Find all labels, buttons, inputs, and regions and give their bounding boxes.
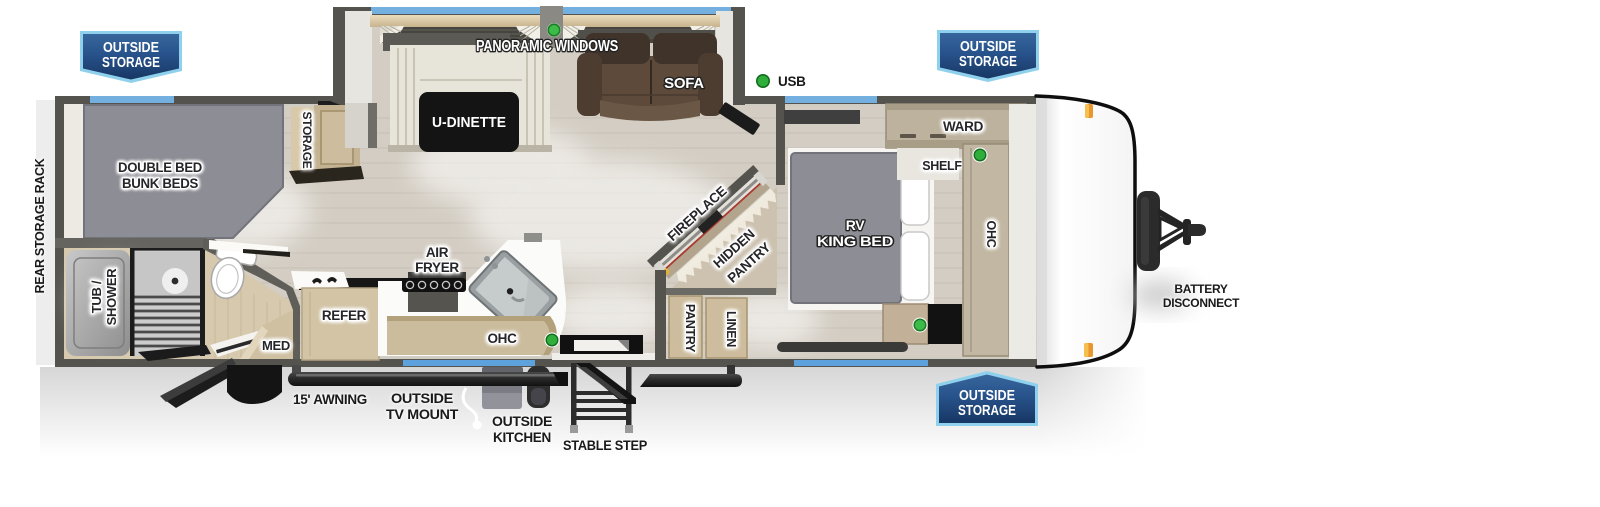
svg-text:STORAGE: STORAGE <box>102 55 160 71</box>
svg-text:MED: MED <box>262 338 290 353</box>
svg-text:OHC: OHC <box>984 221 998 248</box>
svg-text:OUTSIDE: OUTSIDE <box>391 391 453 406</box>
svg-text:OUTSIDE: OUTSIDE <box>103 40 159 56</box>
svg-text:STABLE STEP: STABLE STEP <box>563 438 647 453</box>
svg-text:OUTSIDE: OUTSIDE <box>960 39 1016 55</box>
svg-text:DISCONNECT: DISCONNECT <box>1163 296 1240 310</box>
svg-text:STORAGE: STORAGE <box>300 111 314 168</box>
svg-text:LINEN: LINEN <box>724 311 738 347</box>
svg-text:BUNK BEDS: BUNK BEDS <box>122 175 198 191</box>
svg-text:REFER: REFER <box>322 308 367 323</box>
svg-text:U-DINETTE: U-DINETTE <box>432 114 506 131</box>
svg-text:TV MOUNT: TV MOUNT <box>386 407 459 422</box>
svg-text:RV: RV <box>846 217 866 233</box>
svg-text:PANTRY: PANTRY <box>683 304 697 353</box>
svg-text:FRYER: FRYER <box>415 260 459 275</box>
svg-text:OUTSIDE: OUTSIDE <box>959 388 1015 404</box>
svg-text:AIR: AIR <box>426 245 449 260</box>
svg-text:TUB /: TUB / <box>89 280 104 313</box>
svg-text:OHC: OHC <box>487 331 517 346</box>
svg-text:WARD: WARD <box>943 119 984 134</box>
svg-text:SHELF: SHELF <box>922 159 962 173</box>
svg-text:PANORAMIC WINDOWS: PANORAMIC WINDOWS <box>476 38 618 55</box>
svg-text:SOFA: SOFA <box>664 75 704 92</box>
svg-text:SHOWER: SHOWER <box>104 268 119 326</box>
svg-text:USB: USB <box>778 74 806 89</box>
svg-text:BATTERY: BATTERY <box>1174 282 1228 296</box>
svg-text:KITCHEN: KITCHEN <box>493 430 551 445</box>
svg-text:KING BED: KING BED <box>817 233 893 249</box>
svg-text:15' AWNING: 15' AWNING <box>293 392 367 407</box>
svg-text:REAR STORAGE RACK: REAR STORAGE RACK <box>33 158 47 293</box>
svg-text:DOUBLE BED: DOUBLE BED <box>118 159 202 175</box>
svg-text:STORAGE: STORAGE <box>958 403 1016 419</box>
svg-text:STORAGE: STORAGE <box>959 54 1017 70</box>
svg-text:OUTSIDE: OUTSIDE <box>492 414 552 429</box>
